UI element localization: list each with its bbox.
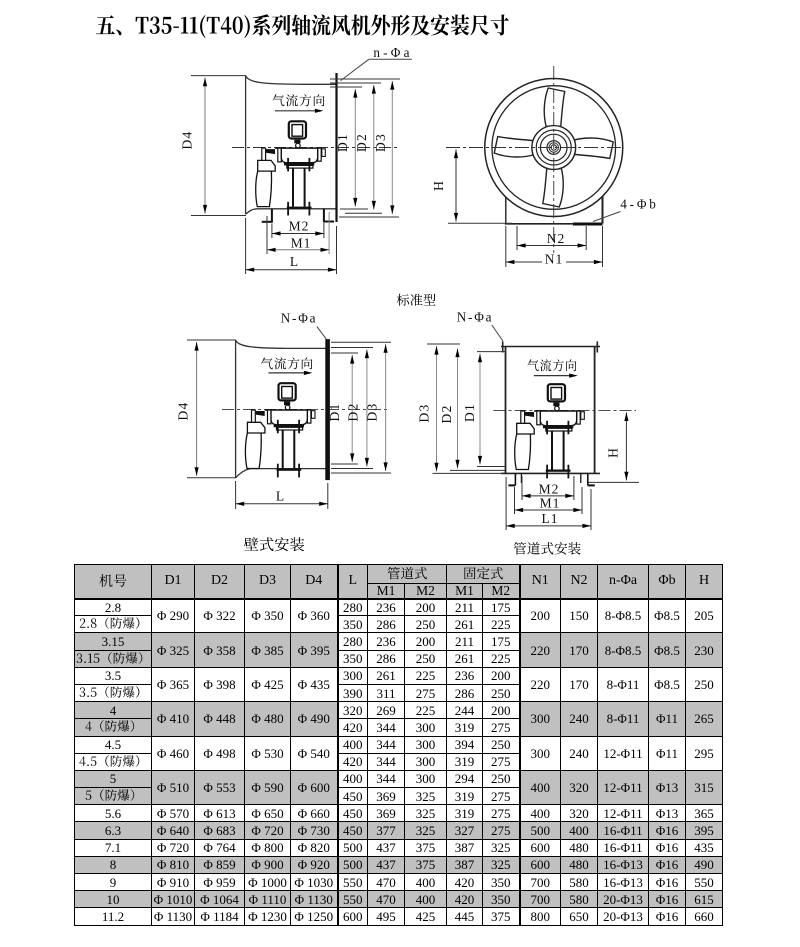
- svg-text:N-Φa: N-Φa: [281, 311, 318, 326]
- svg-text:D1: D1: [327, 403, 342, 422]
- svg-text:N2: N2: [547, 231, 566, 246]
- svg-text:L: L: [290, 254, 298, 269]
- svg-text:D3: D3: [365, 403, 380, 422]
- svg-text:4-Φb: 4-Φb: [620, 197, 658, 212]
- svg-text:L1: L1: [542, 511, 559, 526]
- svg-text:M2: M2: [539, 482, 560, 497]
- svg-text:n-Φa: n-Φa: [373, 45, 412, 60]
- svg-text:N1: N1: [545, 252, 564, 267]
- svg-text:D3: D3: [373, 133, 388, 152]
- svg-text:D4: D4: [180, 131, 195, 150]
- svg-text:D2: D2: [439, 405, 454, 424]
- svg-text:H: H: [431, 181, 446, 191]
- svg-text:H: H: [606, 448, 621, 458]
- svg-text:D4: D4: [176, 402, 191, 421]
- svg-text:M1: M1: [291, 236, 312, 251]
- svg-text:D3: D3: [417, 404, 432, 423]
- svg-text:M2: M2: [289, 219, 310, 234]
- svg-text:M1: M1: [540, 496, 561, 511]
- svg-text:N-Φa: N-Φa: [457, 310, 494, 325]
- svg-text:D2: D2: [354, 133, 369, 152]
- svg-text:D2: D2: [346, 403, 361, 422]
- svg-text:D1: D1: [335, 133, 350, 152]
- svg-text:L: L: [276, 489, 284, 504]
- svg-text:D1: D1: [462, 403, 477, 422]
